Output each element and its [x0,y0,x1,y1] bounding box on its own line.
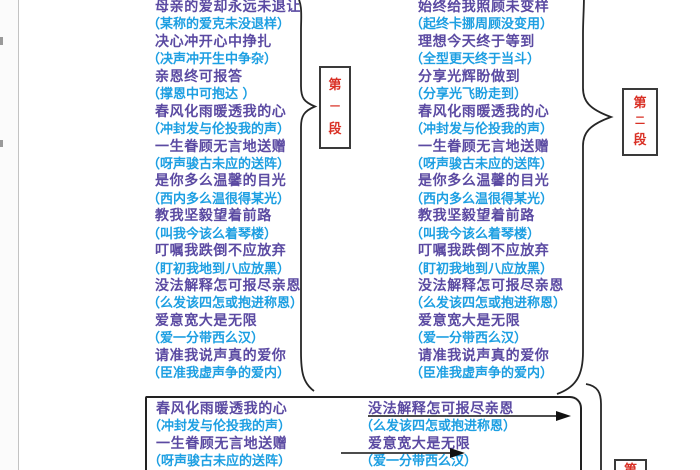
pronunciation-line: （某称的爱克未没退样） [147,16,303,33]
pronunciation-line: （爱一分带西么汉） [147,330,303,347]
section-label-char: 一 [330,103,340,113]
lyric-line: 教我坚毅望着前路 [410,208,566,225]
pronunciation-line: （西内多么温很得某光） [410,191,566,208]
lyric-line: 爱意宽大是无限 [147,313,303,330]
pronunciation-line: （呀声骏古未应的送阵） [148,453,291,470]
lyric-line: 教我坚毅望着前路 [147,208,303,225]
section-label-char: 二 [635,117,645,127]
pronunciation-line: （么发该四怎或抱进称恩） [410,295,566,312]
lyric-line: 一生眷顾无言地送赠 [410,139,566,156]
pronunciation-line: （爱一分带西么汉） [360,453,516,470]
lyrics-annotation-page: 母亲的爱却永远未退让（某称的爱克未没退样）决心冲开心中挣扎（决声冲开生中争杂）亲… [0,0,700,470]
lyric-line: 决心冲开心中挣扎 [147,34,303,51]
section-label-char: 第 [633,97,646,110]
page-edge-gutter [0,0,19,470]
pronunciation-line: （叫我今该么着琴楼） [410,226,566,243]
pronunciation-line: （全型更天终于当斗） [410,51,566,68]
lyric-line: 没法解释怎可报尽亲恩 [410,278,566,295]
lyric-line: 叮嘱我跌倒不应放弃 [410,243,566,260]
lyric-line: 是你多么温馨的目光 [147,173,303,190]
section3-label-box-partial: 第 [614,459,647,470]
lyric-line: 请准我说声真的爱你 [147,348,303,365]
pronunciation-line: （么发该四怎或抱进称恩） [360,418,516,435]
pronunciation-line: （冲封发与伦投我的声） [410,121,566,138]
section1-label-box: 第一段 [319,66,351,149]
lyric-line: 春风化雨暖透我的心 [410,104,566,121]
pronunciation-line: （决声冲开生中争杂） [147,51,303,68]
pronunciation-line: （臣准我虚声争的爱内） [147,365,303,382]
pronunciation-line: （分享光飞盼走到） [410,86,566,103]
lyric-line: 母亲的爱却永远未退让 [147,0,303,16]
lyric-line: 分享光辉盼做到 [410,69,566,86]
pronunciation-line: （爱一分带西么汉） [410,330,566,347]
lyric-line: 春风化雨暖透我的心 [147,104,303,121]
chorus-repeat-right-column: 没法解释怎可报尽亲恩（么发该四怎或抱进称恩）爱意宽大是无限（爱一分带西么汉） [360,401,516,470]
edge-tick [0,37,3,45]
lyric-line: 是你多么温馨的目光 [410,173,566,190]
pronunciation-line: （冲封发与伦投我的声） [148,418,291,435]
lyric-line: 爱意宽大是无限 [360,436,516,453]
lyric-line: 一生眷顾无言地送赠 [148,436,291,453]
section-label-char: 段 [633,134,646,147]
lyric-line: 叮嘱我跌倒不应放弃 [147,243,303,260]
section3-bracket [586,384,601,470]
lyric-line: 请准我说声真的爱你 [410,348,566,365]
pronunciation-line: （呀声骏古未应的送阵） [147,156,303,173]
section-label-char: 第 [328,79,341,92]
lyric-line: 没法解释怎可报尽亲恩 [360,401,516,418]
pronunciation-line: （起终卡挪周顾没变用） [410,16,566,33]
verse2-column: 始终给我照顾未变样（起终卡挪周顾没变用）理想今天终于等到（全型更天终于当斗）分享… [410,0,566,383]
lyric-line: 亲恩终可报答 [147,69,303,86]
edge-tick [0,140,3,147]
pronunciation-line: （盯初我地到八应放黑） [147,261,303,278]
pronunciation-line: （西内多么温很得某光） [147,191,303,208]
lyric-line: 始终给我照顾未变样 [410,0,566,16]
pronunciation-line: （撑恩中可抱达 ） [147,86,303,103]
lyric-line: 爱意宽大是无限 [410,313,566,330]
lyric-line: 一生眷顾无言地送赠 [147,139,303,156]
pronunciation-line: （臣准我虚声争的爱内） [410,365,566,382]
lyric-line: 理想今天终于等到 [410,34,566,51]
pronunciation-line: （冲封发与伦投我的声） [147,121,303,138]
pronunciation-line: （盯初我地到八应放黑） [410,261,566,278]
section-label-char: 段 [328,123,341,136]
section-label-char: 第 [624,464,637,470]
verse1-column: 母亲的爱却永远未退让（某称的爱克未没退样）决心冲开心中挣扎（决声冲开生中争杂）亲… [147,0,303,383]
pronunciation-line: （呀声骏古未应的送阵） [410,156,566,173]
pronunciation-line: （么发该四怎或抱进称恩） [147,295,303,312]
lyric-line: 春风化雨暖透我的心 [148,401,291,418]
pronunciation-line: （叫我今该么着琴楼） [147,226,303,243]
section2-label-box: 第二段 [622,88,658,156]
chorus-repeat-left-column: 春风化雨暖透我的心（冲封发与伦投我的声）一生眷顾无言地送赠（呀声骏古未应的送阵） [148,401,291,470]
lyric-line: 没法解释怎可报尽亲恩 [147,278,303,295]
